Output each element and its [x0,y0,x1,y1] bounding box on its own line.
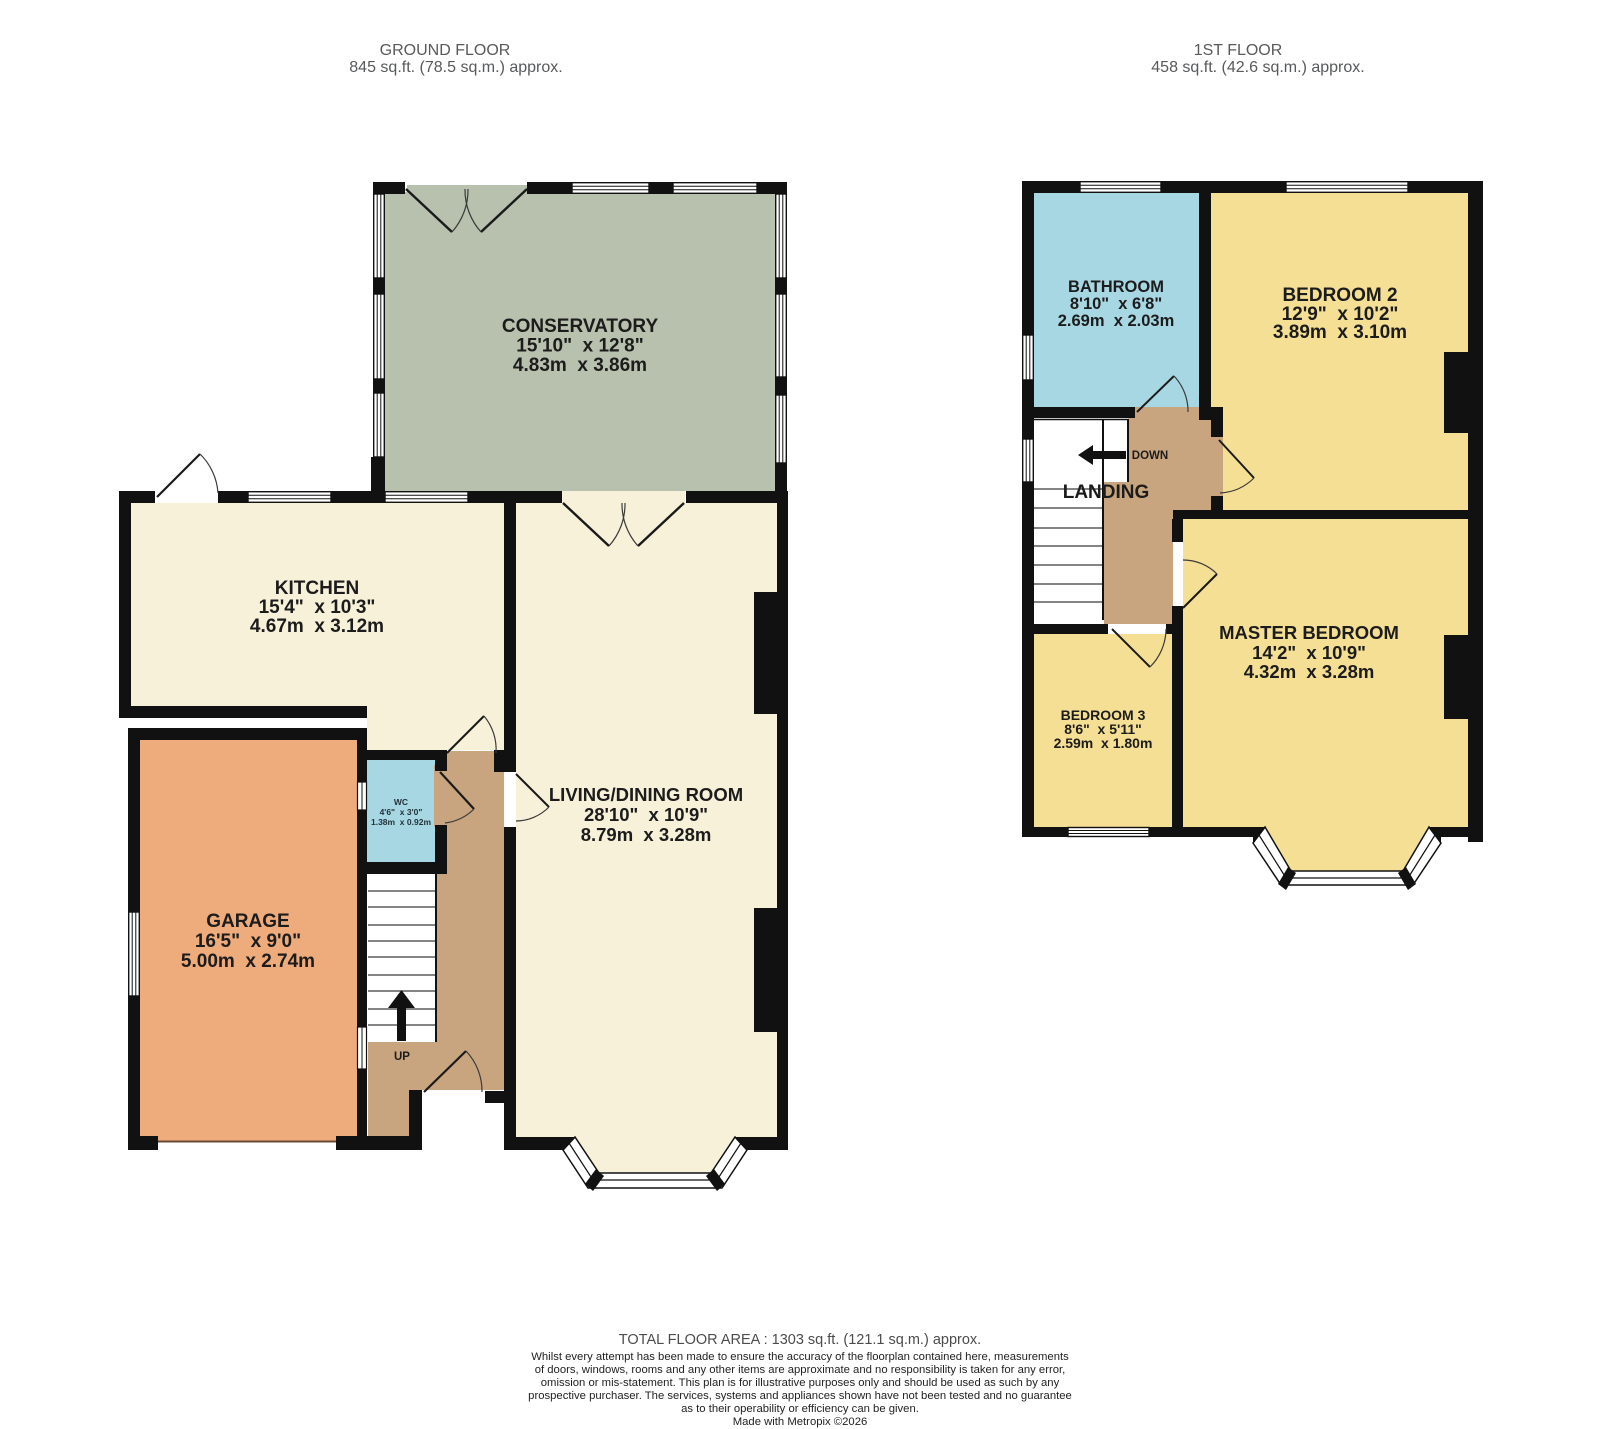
svg-text:28'10" x 10'9": 28'10" x 10'9" [584,804,708,825]
svg-text:omission or mis-statement. Thi: omission or mis-statement. This plan is … [541,1377,1060,1389]
svg-text:MASTER BEDROOM: MASTER BEDROOM [1219,622,1399,643]
svg-text:4.83m x 3.86m: 4.83m x 3.86m [513,355,647,376]
svg-text:GROUND FLOOR: GROUND FLOOR [380,42,511,59]
svg-text:8.79m x 3.28m: 8.79m x 3.28m [581,824,712,845]
svg-text:8'10" x 6'8": 8'10" x 6'8" [1070,295,1162,313]
svg-text:3.89m x 3.10m: 3.89m x 3.10m [1273,322,1407,343]
svg-text:16'5" x 9'0": 16'5" x 9'0" [195,931,301,952]
svg-text:4.67m x 3.12m: 4.67m x 3.12m [250,616,384,637]
svg-text:845 sq.ft. (78.5 sq.m.) approx: 845 sq.ft. (78.5 sq.m.) approx. [349,59,562,76]
svg-text:1ST FLOOR: 1ST FLOOR [1194,42,1283,59]
svg-text:as to their operability or eff: as to their operability or efficiency ca… [681,1403,919,1415]
svg-text:BEDROOM 2: BEDROOM 2 [1282,285,1397,306]
svg-text:GARAGE: GARAGE [206,911,289,932]
svg-text:4.32m x 3.28m: 4.32m x 3.28m [1244,661,1375,682]
svg-text:of doors, windows, rooms and a: of doors, windows, rooms and any other i… [535,1364,1066,1376]
svg-text:CONSERVATORY: CONSERVATORY [502,316,659,337]
svg-text:5.00m x 2.74m: 5.00m x 2.74m [181,951,315,972]
svg-text:14'2" x 10'9": 14'2" x 10'9" [1252,642,1366,663]
svg-text:prospective purchaser. The ser: prospective purchaser. The services, sys… [528,1390,1072,1402]
svg-text:TOTAL FLOOR AREA : 1303 sq.ft.: TOTAL FLOOR AREA : 1303 sq.ft. (121.1 sq… [619,1332,981,1348]
svg-text:UP: UP [394,1051,410,1063]
svg-text:15'10" x 12'8": 15'10" x 12'8" [516,336,643,357]
svg-text:Whilst every attempt has been: Whilst every attempt has been made to en… [531,1351,1069,1363]
svg-text:DOWN: DOWN [1132,450,1168,462]
svg-text:Made with Metropix ©2026: Made with Metropix ©2026 [733,1416,868,1428]
svg-text:KITCHEN: KITCHEN [275,578,359,599]
svg-text:WC: WC [394,797,408,807]
svg-text:LANDING: LANDING [1063,482,1150,503]
svg-text:BATHROOM: BATHROOM [1068,278,1164,296]
svg-text:2.59m x 1.80m: 2.59m x 1.80m [1054,735,1153,751]
svg-text:2.69m x 2.03m: 2.69m x 2.03m [1058,312,1175,330]
svg-text:15'4" x 10'3": 15'4" x 10'3" [259,597,376,618]
svg-text:4'6" x 3'0": 4'6" x 3'0" [380,807,423,817]
svg-text:LIVING/DINING ROOM: LIVING/DINING ROOM [549,784,743,805]
svg-text:458 sq.ft. (42.6 sq.m.) approx: 458 sq.ft. (42.6 sq.m.) approx. [1151,59,1364,76]
svg-text:1.38m x 0.92m: 1.38m x 0.92m [371,817,431,827]
